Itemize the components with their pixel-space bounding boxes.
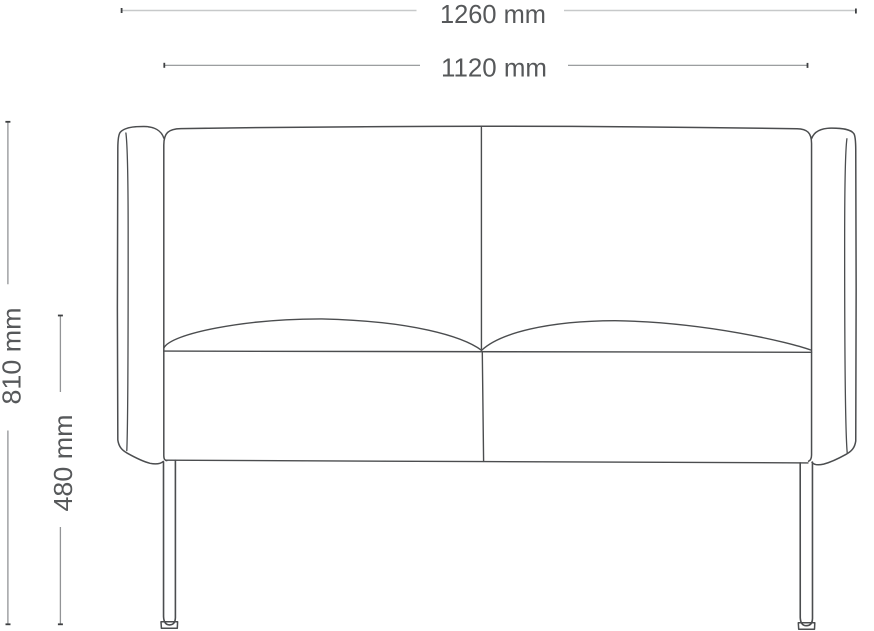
svg-text:1260 mm: 1260 mm <box>440 0 546 29</box>
svg-text:810 mm: 810 mm <box>0 308 27 405</box>
svg-text:480 mm: 480 mm <box>48 415 78 512</box>
svg-text:1120 mm: 1120 mm <box>441 53 547 83</box>
